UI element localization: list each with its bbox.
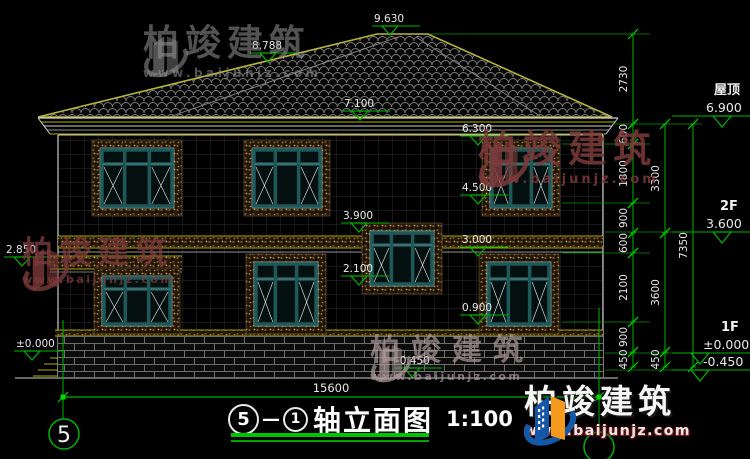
elevation-value: 2.100	[343, 263, 373, 275]
elevation-value: 4.500	[462, 182, 492, 194]
cad-elevation-screenshot: 2730600180090060021009004503300360045073…	[0, 0, 750, 459]
storey-label: 2F	[720, 199, 738, 214]
dimension-value: 900	[618, 208, 630, 228]
window	[92, 140, 182, 216]
window	[244, 140, 330, 216]
window	[479, 254, 559, 334]
dimension-value: 7350	[678, 232, 690, 259]
dimension-value: 2730	[618, 66, 630, 93]
title-underline	[231, 433, 429, 437]
elevation-value: 6.300	[462, 123, 492, 135]
window	[94, 268, 180, 334]
dimension-value: 3300	[650, 165, 662, 192]
dimension-value: 3600	[650, 279, 662, 306]
dimension-value: 600	[618, 233, 630, 253]
elevation-value: -0.450	[396, 355, 430, 367]
elevation-marker: ±0.000	[14, 338, 62, 360]
storey-label: 屋顶	[714, 83, 740, 98]
storey-level: 屋顶6.900	[672, 83, 750, 127]
axis-number: 5	[57, 423, 71, 448]
elevation-value: 9.630	[374, 13, 404, 25]
title-underline-thin	[231, 440, 429, 442]
eave-cornice	[38, 118, 618, 134]
elevation-value: 7.100	[344, 98, 374, 110]
window	[246, 254, 326, 334]
dimension-value: 2100	[618, 274, 630, 301]
axis-number-start: 5	[228, 404, 259, 435]
storey-elevation: -0.450	[703, 354, 743, 369]
elevation-value: 2.850	[6, 244, 36, 256]
storey-level: -0.450	[672, 354, 750, 381]
brand-logo: 柏竣建筑 www.baijunjz.com	[524, 385, 691, 439]
dimension-value: 15600	[313, 381, 350, 395]
window	[362, 223, 442, 294]
storey-elevation: 3.600	[706, 216, 742, 231]
dimension-chain: 273060018009006002100900450	[618, 29, 638, 372]
elevation-value: 0.900	[462, 302, 492, 314]
dimension-chain: 7350	[678, 119, 698, 372]
elevation-marker: 2.850	[4, 244, 52, 266]
elevation-marker: 9.630	[372, 13, 420, 35]
hip-roof	[38, 34, 612, 117]
dimension-value: 900	[618, 327, 630, 347]
storey-elevation: ±0.000	[703, 337, 749, 352]
elevation-value: 3.000	[462, 234, 492, 246]
window	[482, 140, 560, 216]
entry-steps	[33, 358, 58, 376]
brand-logo-icon	[524, 385, 578, 449]
dimension-value: 1800	[618, 160, 630, 187]
elevation-value: 8.788	[252, 40, 282, 52]
storey-elevation: 6.900	[706, 100, 742, 115]
axis-dash: —	[262, 409, 280, 430]
axis-number-end: 1	[283, 407, 308, 432]
storey-label: 1F	[721, 320, 739, 335]
elevation-value: 3.900	[343, 210, 373, 222]
title-scale: 1:100	[446, 407, 513, 431]
dimension-value: 450	[618, 349, 630, 369]
dimension-value: 450	[650, 349, 662, 369]
brick-plinth	[55, 330, 603, 377]
dimension-value: 600	[618, 124, 630, 144]
elevation-value: ±0.000	[16, 338, 55, 350]
dimension-chain: 33003600450	[650, 119, 670, 372]
